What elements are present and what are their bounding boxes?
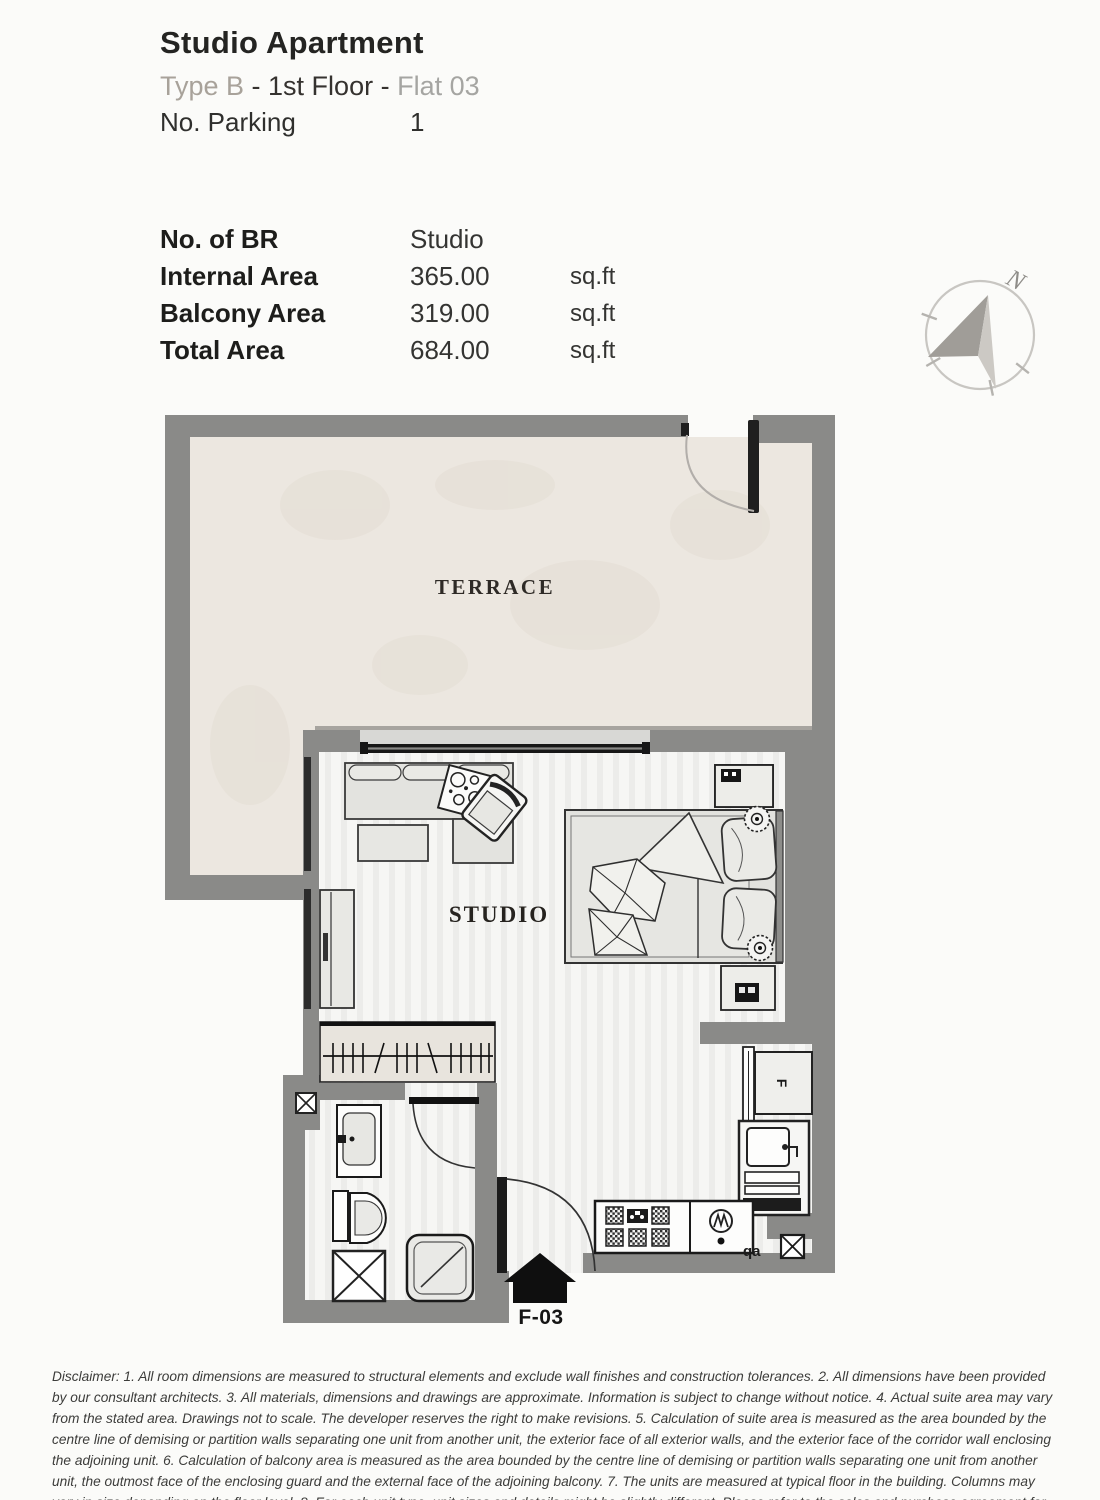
area-table: No. of BR Studio Internal Area 365.00 sq… xyxy=(160,221,760,369)
row-unit: sq.ft xyxy=(570,300,760,328)
table-row: Balcony Area 319.00 sq.ft xyxy=(160,295,760,332)
shower xyxy=(407,1235,473,1301)
compass: N xyxy=(915,253,1045,403)
kitchen-note: qa xyxy=(743,1243,761,1260)
floor-plan-sheet: Studio Apartment Type B - 1st Floor - Fl… xyxy=(0,0,1100,1500)
table-row: No. of BR Studio xyxy=(160,221,760,258)
kitchen-shaft-symbol xyxy=(781,1235,804,1258)
row-value: 684.00 xyxy=(410,335,570,366)
row-value: 319.00 xyxy=(410,298,570,329)
compass-rose-icon: N xyxy=(915,253,1045,403)
terrace-label: TERRACE xyxy=(435,575,555,599)
bathroom-sink xyxy=(337,1105,381,1177)
unit-floor-label: - 1st Floor - xyxy=(244,71,397,101)
row-label: Balcony Area xyxy=(160,298,410,329)
unit-type-label: Type B xyxy=(160,71,244,101)
row-unit: sq.ft xyxy=(570,337,760,365)
row-label: Internal Area xyxy=(160,261,410,292)
table-row: Total Area 684.00 sq.ft xyxy=(160,332,760,369)
floor-plan: F xyxy=(165,415,835,1325)
disclaimer-text: Disclaimer: 1. All room dimensions are m… xyxy=(52,1366,1056,1500)
unit-marker-label: F-03 xyxy=(518,1306,563,1325)
row-unit: sq.ft xyxy=(570,263,760,291)
table-row: Internal Area 365.00 sq.ft xyxy=(160,258,760,295)
wardrobe xyxy=(320,890,354,1008)
table-lamp-icon xyxy=(748,936,773,961)
fridge-label: F xyxy=(774,1079,790,1088)
wall-shaft-symbol xyxy=(296,1093,316,1113)
hanger-rack xyxy=(320,1022,495,1082)
unit-subtitle: Type B - 1st Floor - Flat 03 xyxy=(160,71,480,102)
parking-row: No. Parking 1 xyxy=(160,107,580,138)
row-label: No. of BR xyxy=(160,224,410,255)
page-title: Studio Apartment xyxy=(160,25,424,61)
toilet xyxy=(333,1191,386,1243)
row-value: 365.00 xyxy=(410,261,570,292)
shaft-symbol xyxy=(333,1251,385,1301)
row-value: Studio xyxy=(410,224,570,255)
unit-flat-label: Flat 03 xyxy=(397,71,480,101)
fridge: F xyxy=(755,1052,812,1114)
compass-north-label: N xyxy=(1001,264,1030,297)
sliding-window xyxy=(360,730,650,754)
nightstand xyxy=(721,966,775,1010)
table-lamp-icon xyxy=(745,807,770,832)
nightstand xyxy=(715,765,773,807)
compass-needle-dark xyxy=(928,295,988,357)
parking-value: 1 xyxy=(410,107,424,138)
coffee-table xyxy=(358,825,428,861)
studio-label: STUDIO xyxy=(449,902,549,927)
row-label: Total Area xyxy=(160,335,410,366)
parking-label: No. Parking xyxy=(160,107,296,137)
floor-plan-drawing: F xyxy=(165,415,835,1325)
